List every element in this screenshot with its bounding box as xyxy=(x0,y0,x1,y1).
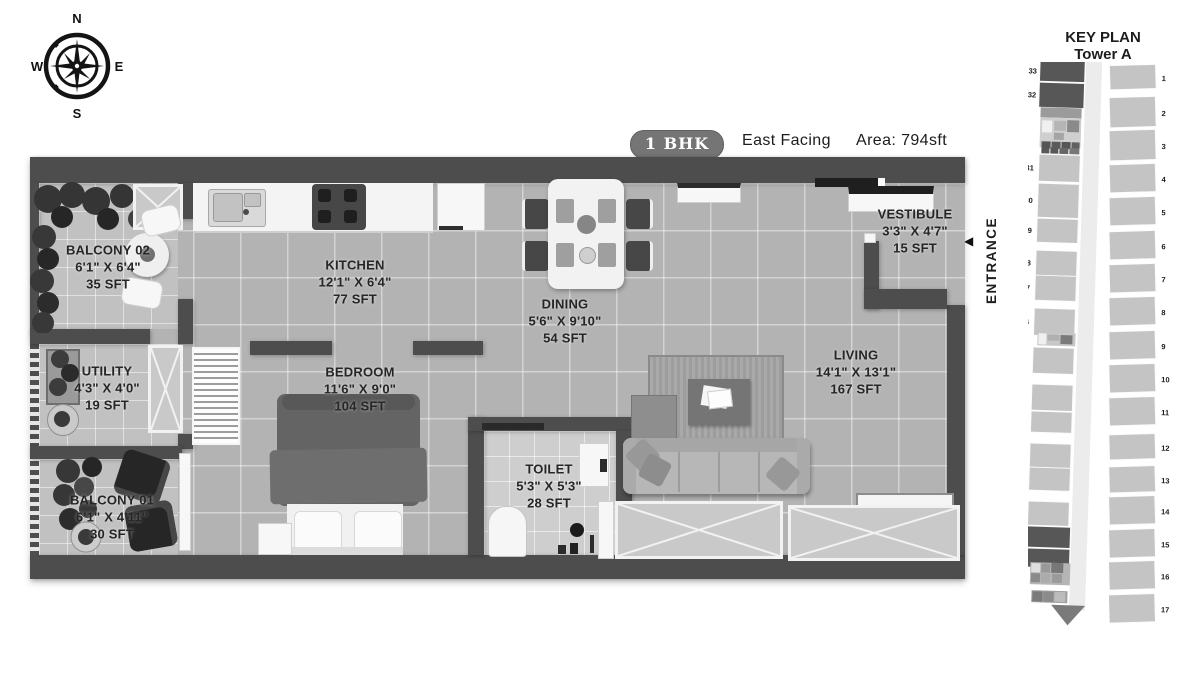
bed-headboard xyxy=(287,547,403,555)
shower-head xyxy=(570,523,584,537)
svg-text:32: 32 xyxy=(1028,90,1036,99)
nightstand xyxy=(258,523,292,555)
svg-text:26: 26 xyxy=(1028,317,1029,326)
svg-text:30: 30 xyxy=(1028,196,1033,205)
ledge-xbox-right xyxy=(788,505,960,561)
compass-w-label: W xyxy=(31,59,44,74)
svg-text:10: 10 xyxy=(1161,375,1170,384)
svg-text:29: 29 xyxy=(1028,226,1032,235)
dining-chair-3 xyxy=(626,199,653,229)
svg-text:13: 13 xyxy=(1161,476,1170,485)
place-mat-3 xyxy=(598,199,616,223)
room-label-living: LIVING14'1" X 13'1"167 SFT xyxy=(816,347,896,398)
svg-text:33: 33 xyxy=(1028,66,1037,75)
sofa-seam-1 xyxy=(678,452,680,492)
pillow-left xyxy=(294,511,342,551)
compass-icon: N W E S xyxy=(24,6,134,122)
pillow-right xyxy=(354,511,402,551)
shower-rod xyxy=(590,535,594,553)
svg-text:28: 28 xyxy=(1028,258,1031,267)
key-plan-title: KEY PLAN Tower A xyxy=(1028,29,1178,63)
bhk-badge: 1 BHK xyxy=(630,130,724,159)
facing-label: East Facing xyxy=(742,132,831,150)
room-label-dining: DINING5'6" X 9'10"54 SFT xyxy=(529,296,602,347)
svg-text:11: 11 xyxy=(1161,408,1169,417)
utility-door-panel xyxy=(148,345,183,433)
svg-text:31: 31 xyxy=(1028,163,1034,172)
burner-2 xyxy=(344,189,357,202)
place-mat-4 xyxy=(598,243,616,267)
sofa-seam-3 xyxy=(758,452,760,492)
wall-bedroom-b xyxy=(413,341,483,355)
wall-balcony02-b xyxy=(178,299,193,344)
entrance-label: ENTRANCE xyxy=(984,192,1004,304)
side-table xyxy=(631,395,677,439)
svg-text:17: 17 xyxy=(1161,605,1170,614)
coffee-table-paper-2 xyxy=(707,389,733,410)
burner-1 xyxy=(318,189,331,202)
compass-n-label: N xyxy=(72,11,81,26)
svg-text:6: 6 xyxy=(1161,242,1165,251)
place-mat-2 xyxy=(556,243,574,267)
key-plan-subtitle: Tower A xyxy=(1028,46,1178,63)
wall-vestibule-horz xyxy=(864,289,947,309)
room-label-utility: UTILITY4'3" X 4'0"19 SFT xyxy=(74,363,140,414)
floor-plan: BALCONY 026'1" X 6'4"35 SFT KITCHEN12'1"… xyxy=(30,157,965,579)
svg-text:3: 3 xyxy=(1161,142,1165,151)
dining-table xyxy=(548,179,624,289)
wall-bedroom-a xyxy=(250,341,332,355)
sink-basin-small xyxy=(244,193,261,207)
sofa-arm-right xyxy=(797,438,810,494)
svg-text:8: 8 xyxy=(1161,308,1165,317)
fridge-handle xyxy=(439,226,463,230)
room-label-kitchen: KITCHEN12'1" X 6'4"77 SFT xyxy=(319,257,392,308)
fridge xyxy=(437,183,485,231)
bed-blanket-fold xyxy=(270,448,428,505)
wall-toilet-left xyxy=(468,417,484,555)
towel-rail xyxy=(482,423,544,430)
toilet-fitting-b xyxy=(570,543,578,554)
svg-text:16: 16 xyxy=(1161,572,1170,581)
balcony-railing xyxy=(30,335,39,555)
room-label-balcony-01: BALCONY 016'1" X 4'11"30 SFT xyxy=(70,492,154,543)
dining-shelf xyxy=(677,183,741,203)
toilet-bowl xyxy=(488,506,527,557)
toilet-fitting-a xyxy=(558,545,566,554)
basin-tap xyxy=(600,459,607,472)
compass-s-label: S xyxy=(73,106,82,121)
bedroom-window-shutter xyxy=(192,347,240,445)
utility-pot-plant xyxy=(54,411,70,427)
svg-text:4: 4 xyxy=(1161,175,1166,184)
sink-basin-large xyxy=(213,193,243,222)
svg-text:2: 2 xyxy=(1161,109,1165,118)
svg-text:5: 5 xyxy=(1161,208,1165,217)
svg-text:1: 1 xyxy=(1162,74,1166,83)
room-label-balcony-02: BALCONY 026'1" X 6'4"35 SFT xyxy=(66,242,150,293)
dining-chair-2 xyxy=(522,241,549,271)
key-plan-diagram: 3332313029282726252423222120191812345678… xyxy=(1028,62,1178,662)
ledge-xbox-left xyxy=(615,501,783,559)
key-plan-heading: KEY PLAN xyxy=(1028,29,1178,46)
svg-text:27: 27 xyxy=(1028,283,1030,292)
svg-text:15: 15 xyxy=(1161,540,1170,549)
plants-left xyxy=(28,225,66,333)
vestibule-door-jamb xyxy=(864,233,876,243)
dining-chair-1 xyxy=(522,199,549,229)
area-label: Area: 794sft xyxy=(856,132,947,150)
burner-4 xyxy=(344,210,357,223)
balcony-01-door xyxy=(179,453,191,551)
place-mat-1 xyxy=(556,199,574,223)
room-label-toilet: TOILET5'3" X 5'3"28 SFT xyxy=(516,461,582,512)
sink-faucet xyxy=(243,209,249,215)
floor-plan-page: N W E S 1 BHK East Facing Area: 794sft ◀… xyxy=(0,0,1200,700)
table-bowl xyxy=(579,247,596,264)
living-door-frame xyxy=(598,501,614,559)
compass-e-label: E xyxy=(115,59,124,74)
svg-text:7: 7 xyxy=(1161,275,1165,284)
burner-3 xyxy=(318,210,331,223)
room-label-vestibule: VESTIBULE3'3" X 4'7"15 SFT xyxy=(878,206,953,257)
room-label-bedroom: BEDROOM11'6" X 9'0"104 SFT xyxy=(324,364,396,415)
svg-text:9: 9 xyxy=(1161,342,1165,351)
svg-text:14: 14 xyxy=(1161,507,1170,516)
table-centerpiece xyxy=(577,215,596,234)
sofa-seam-2 xyxy=(718,452,720,492)
dining-chair-4 xyxy=(626,241,653,271)
entrance-arrow-icon: ◀ xyxy=(964,234,973,248)
svg-text:12: 12 xyxy=(1161,444,1170,453)
